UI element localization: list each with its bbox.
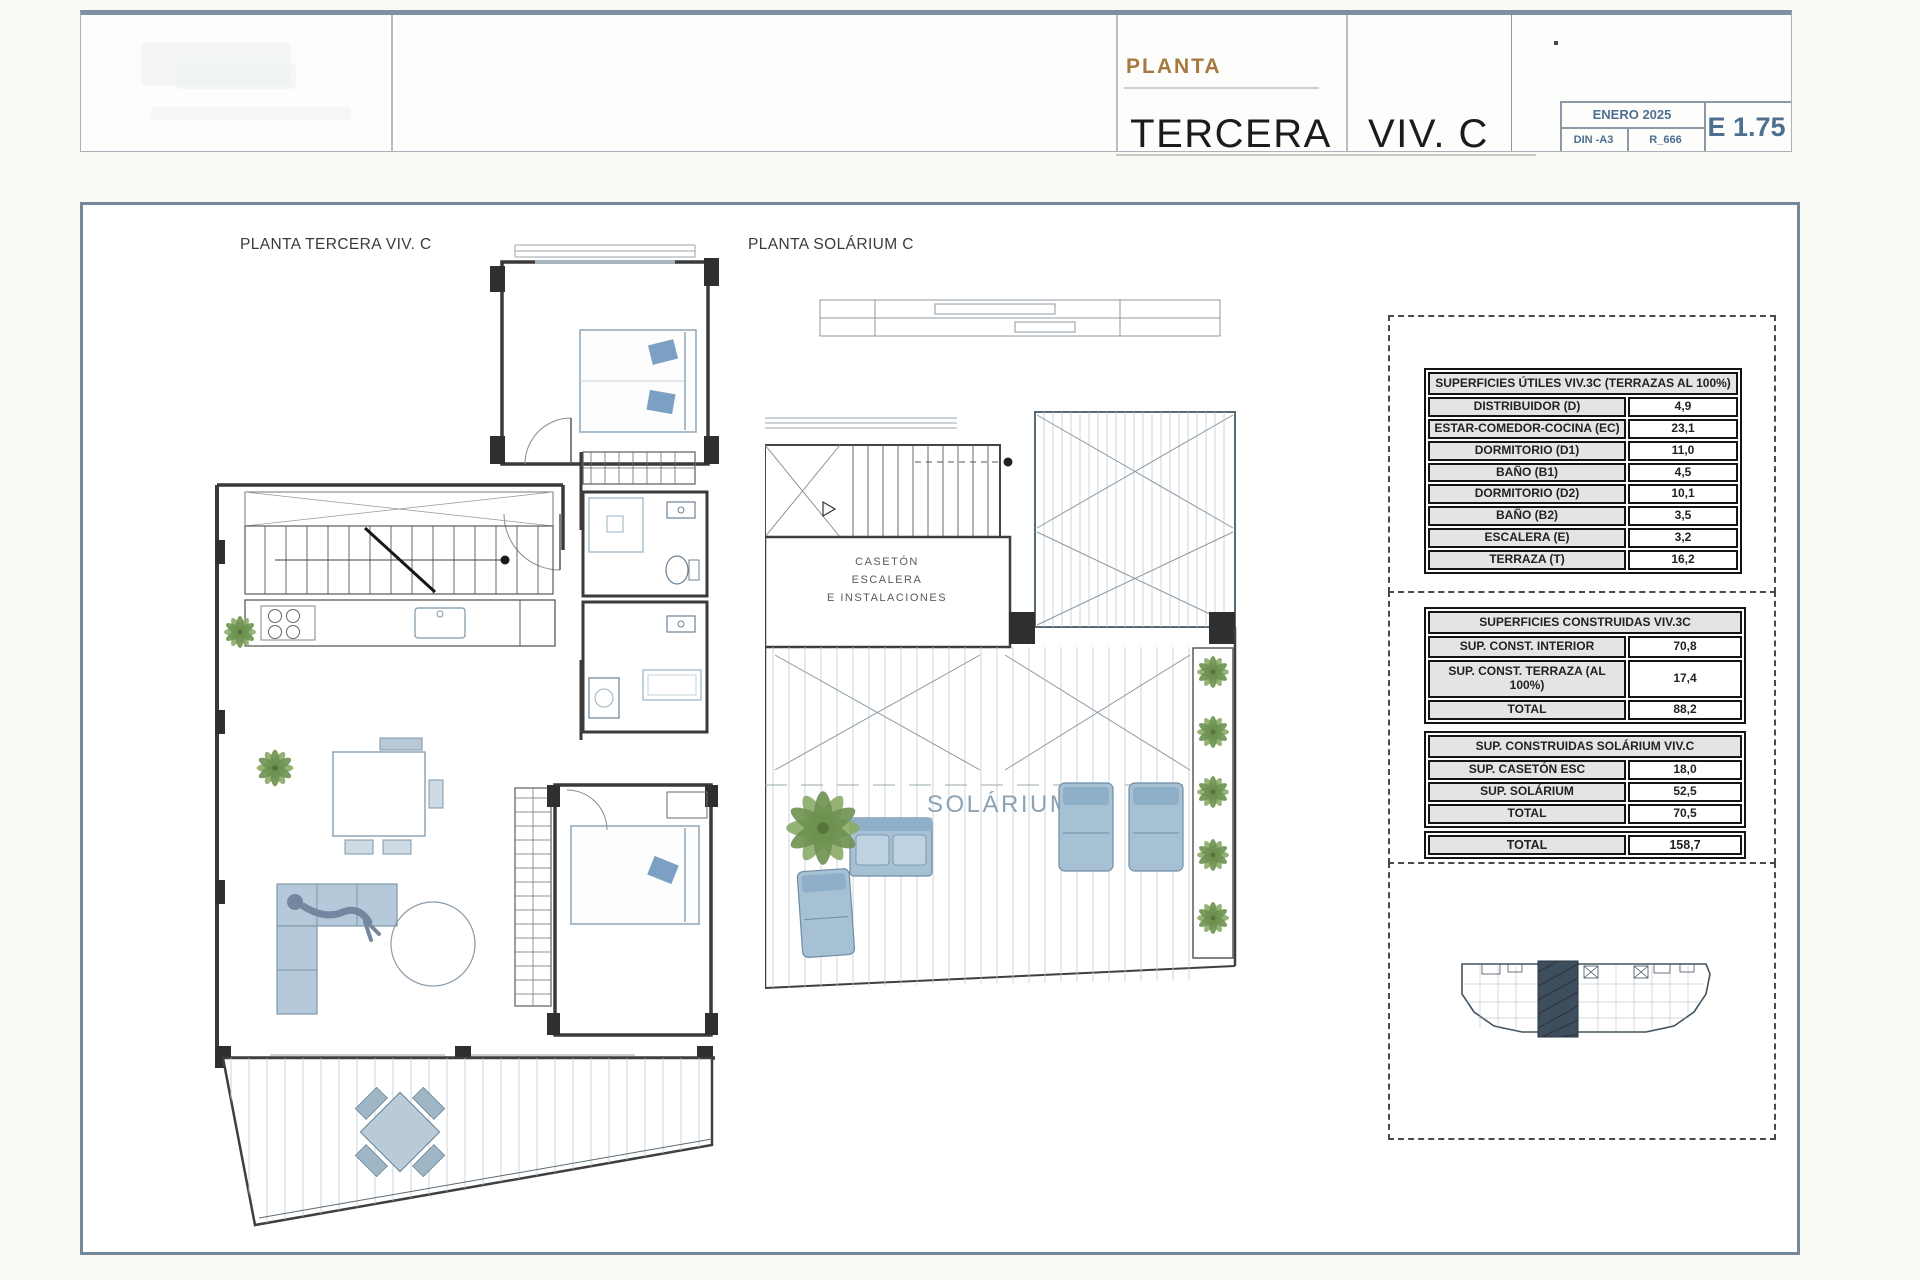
hallway — [504, 452, 581, 740]
bathroom-b2 — [583, 602, 707, 732]
floorplan-solarium-svg: CASETÓN ESCALERA E INSTALACIONES — [765, 240, 1240, 1015]
terrace — [223, 1052, 712, 1235]
table-row: TOTAL 158,7 — [1428, 835, 1742, 855]
bedroom-d1 — [490, 258, 719, 464]
neighbour-band — [820, 300, 1220, 336]
sun-lounger — [797, 868, 855, 957]
round-rug — [391, 902, 475, 986]
outdoor-sofa — [850, 818, 932, 876]
sun-lounger — [1059, 783, 1113, 871]
row-value: 18,0 — [1628, 760, 1742, 780]
caseton-label-3: E INSTALACIONES — [827, 592, 947, 604]
palm-tree — [786, 791, 860, 865]
series-underline — [1124, 87, 1319, 89]
balcony-railing — [515, 245, 695, 257]
row-value: 52,5 — [1628, 782, 1742, 802]
row-label: ESCALERA (E) — [1428, 528, 1626, 548]
key-plan-svg — [1448, 952, 1720, 1052]
scale-field: E 1.75 — [1704, 102, 1789, 152]
row-value: 88,2 — [1628, 700, 1742, 720]
date-field: ENERO 2025 — [1560, 102, 1704, 127]
table-row: DORMITORIO (D2)10,1 — [1428, 484, 1738, 504]
bedroom-d2 — [547, 785, 718, 1035]
row-label: BAÑO (B2) — [1428, 506, 1626, 526]
wardrobe-column — [515, 788, 551, 1006]
surface-table-construidas: SUPERFICIES CONSTRUIDAS VIV.3C SUP. CONS… — [1424, 607, 1746, 724]
planter-column — [1193, 648, 1233, 958]
sun-lounger — [1129, 783, 1183, 871]
row-label: DISTRIBUIDOR (D) — [1428, 397, 1626, 417]
glass-railing — [765, 418, 957, 428]
row-value: 3,5 — [1628, 506, 1738, 526]
floorplan-tercera-svg — [215, 240, 760, 1250]
row-label: SUP. SOLÁRIUM — [1428, 782, 1626, 802]
row-label: SUP. CONST. TERRAZA (AL 100%) — [1428, 660, 1626, 698]
table-row: SUP. SOLÁRIUM52,5 — [1428, 782, 1742, 802]
mark-dot — [1554, 41, 1558, 45]
row-value: 16,2 — [1628, 550, 1738, 570]
table-row: SUP. CONST. INTERIOR70,8 — [1428, 636, 1742, 658]
surface-table-solarium: SUP. CONSTRUIDAS SOLÁRIUM VIV.C SUP. CAS… — [1424, 731, 1746, 828]
table-row: SUP. CASETÓN ESC18,0 — [1428, 760, 1742, 780]
row-value: 11,0 — [1628, 441, 1738, 461]
surface-table-utiles: SUPERFICIES ÚTILES VIV.3C (TERRAZAS AL 1… — [1424, 368, 1742, 574]
reference-field: R_666 — [1627, 128, 1704, 152]
row-label: DORMITORIO (D1) — [1428, 441, 1626, 461]
row-label: ESTAR-COMEDOR-COCINA (EC) — [1428, 419, 1626, 439]
table-row: ESCALERA (E)3,2 — [1428, 528, 1738, 548]
row-label: SUP. CASETÓN ESC — [1428, 760, 1626, 780]
pergola-deck — [1009, 412, 1235, 644]
row-label: TOTAL — [1428, 700, 1626, 720]
unit-name: VIV. C — [1346, 103, 1511, 155]
table-row: SUP. CONST. TERRAZA (AL 100%)17,4 — [1428, 660, 1742, 698]
row-value: 4,5 — [1628, 463, 1738, 483]
row-value: 23,1 — [1628, 419, 1738, 439]
grand-total-table: TOTAL 158,7 — [1424, 831, 1746, 859]
table-row: BAÑO (B2)3,5 — [1428, 506, 1738, 526]
table-header: SUPERFICIES CONSTRUIDAS VIV.3C — [1428, 611, 1742, 634]
title-block: PLANTA TERCERA VIV. C ENERO 2025 DIN -A3… — [80, 10, 1792, 152]
caseton-label-1: CASETÓN — [855, 555, 919, 568]
floor-name: TERCERA — [1116, 103, 1346, 155]
table-row: TERRAZA (T)16,2 — [1428, 550, 1738, 570]
row-label: SUP. CONST. INTERIOR — [1428, 636, 1626, 658]
divider — [391, 15, 393, 151]
row-value: 70,5 — [1628, 804, 1742, 824]
series-label: PLANTA — [1126, 55, 1222, 79]
row-value: 158,7 — [1628, 835, 1742, 855]
table-row: BAÑO (B1)4,5 — [1428, 463, 1738, 483]
caseton-label-2: ESCALERA — [852, 574, 923, 586]
info-box: ENERO 2025 DIN -A3 R_666 E 1.75 — [1511, 15, 1791, 151]
row-label: TOTAL — [1428, 835, 1626, 855]
caseton-room: CASETÓN ESCALERA E INSTALACIONES — [765, 537, 1010, 647]
table-header: SUP. CONSTRUIDAS SOLÁRIUM VIV.C — [1428, 735, 1742, 758]
paper-size-field: DIN -A3 — [1560, 128, 1627, 152]
row-value: 70,8 — [1628, 636, 1742, 658]
table-row: DORMITORIO (D1)11,0 — [1428, 441, 1738, 461]
row-label: TOTAL — [1428, 804, 1626, 824]
table-row: ESTAR-COMEDOR-COCINA (EC)23,1 — [1428, 419, 1738, 439]
row-value: 17,4 — [1628, 660, 1742, 698]
row-label: DORMITORIO (D2) — [1428, 484, 1626, 504]
row-value: 4,9 — [1628, 397, 1738, 417]
table-header: SUPERFICIES ÚTILES VIV.3C (TERRAZAS AL 1… — [1428, 372, 1738, 395]
table-row: TOTAL70,5 — [1428, 804, 1742, 824]
row-value: 10,1 — [1628, 484, 1738, 504]
solarium-stairs — [765, 445, 1013, 537]
title-underline — [1116, 154, 1536, 156]
row-label: BAÑO (B1) — [1428, 463, 1626, 483]
row-value: 3,2 — [1628, 528, 1738, 548]
table-row: DISTRIBUIDOR (D)4,9 — [1428, 397, 1738, 417]
floorplan-sheet: { "title_block": { "series_label": "PLAN… — [0, 0, 1920, 1280]
highlighted-unit — [1538, 961, 1578, 1037]
bathroom-b1 — [583, 492, 707, 596]
table-row: TOTAL88,2 — [1428, 700, 1742, 720]
row-label: TERRAZA (T) — [1428, 550, 1626, 570]
